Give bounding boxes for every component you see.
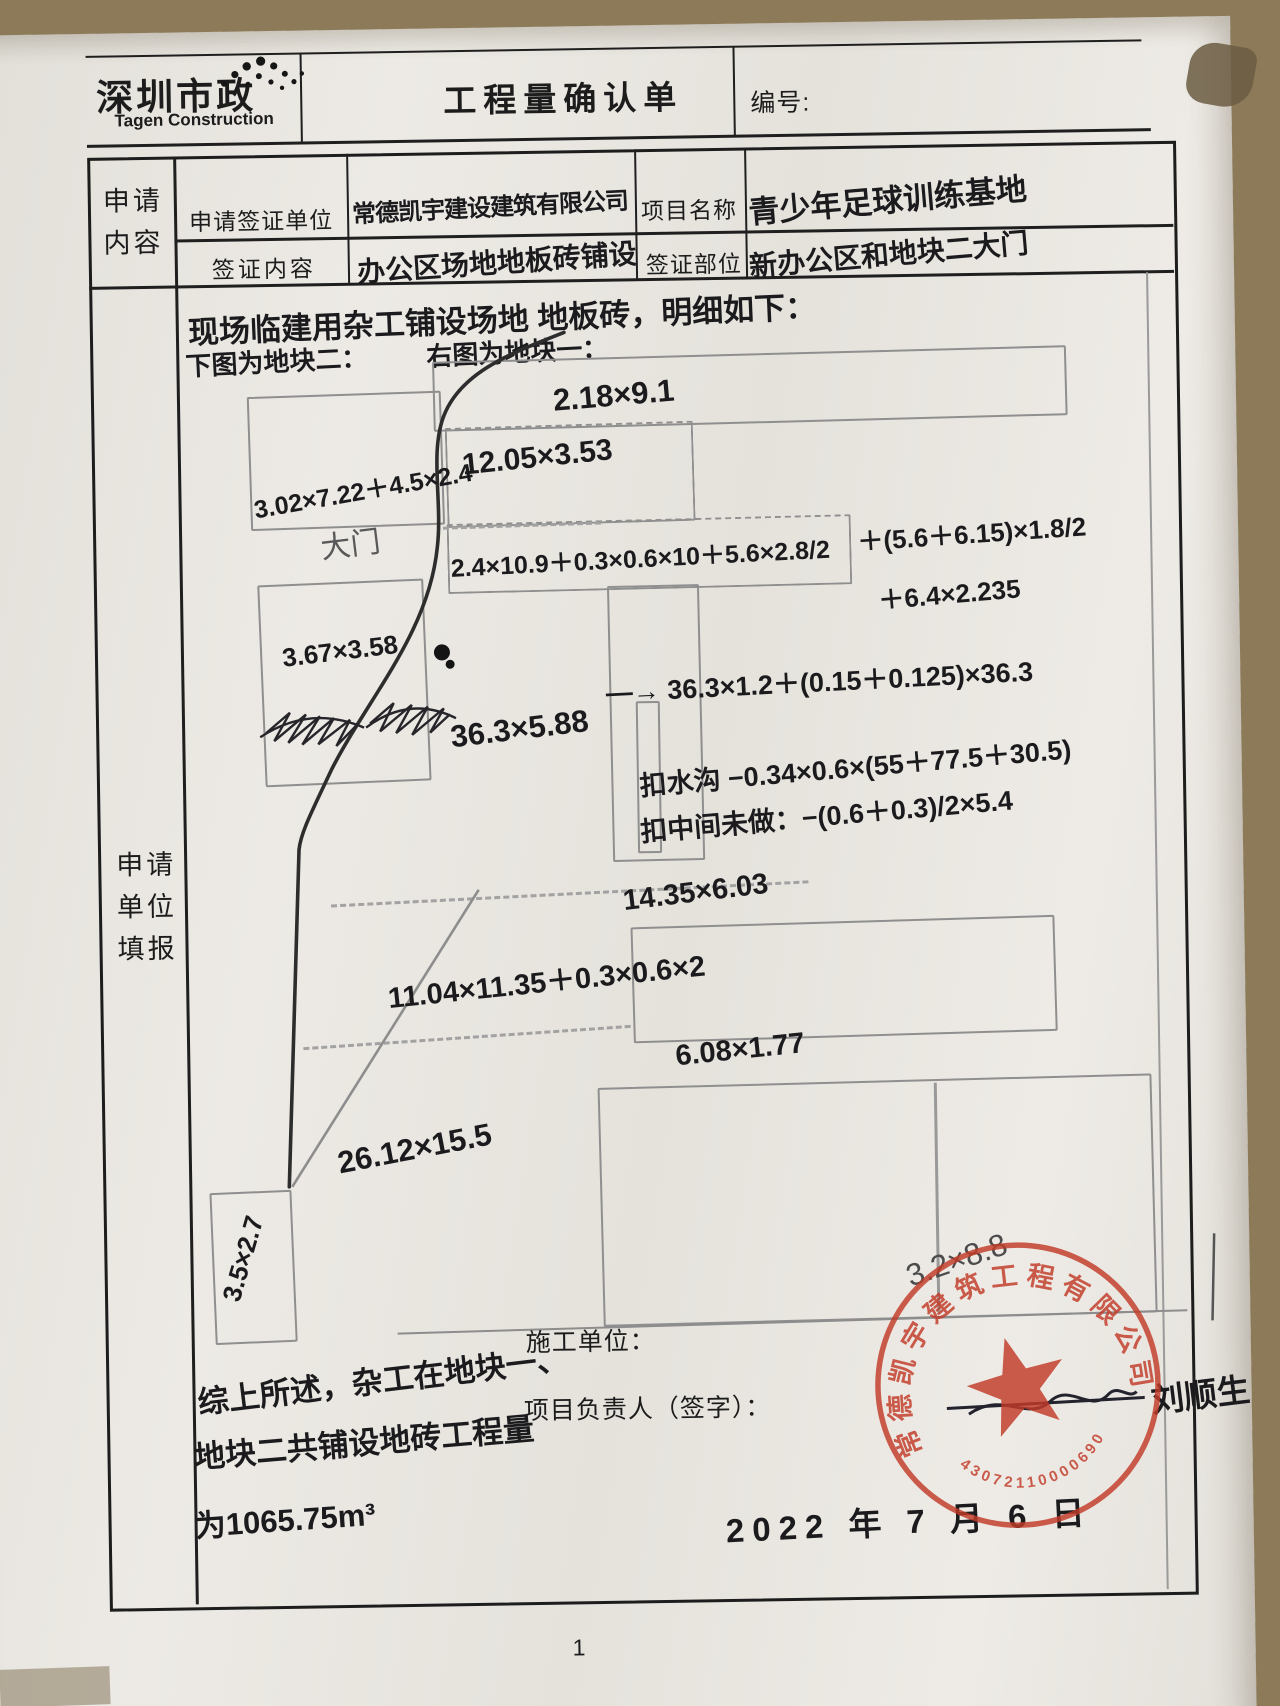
right-margin-mark <box>1211 1233 1215 1320</box>
photo-background: 深圳市政 Tagen Construction 工程量确认单 编号: <box>0 0 1280 1706</box>
sketch-gate-label: 大门 <box>318 516 383 567</box>
paper-sheet: 深圳市政 Tagen Construction 工程量确认单 编号: <box>0 16 1258 1706</box>
ink-blot-small <box>446 660 455 669</box>
page-number: 1 <box>572 1634 585 1661</box>
form-content: 深圳市政 Tagen Construction 工程量确认单 编号: <box>0 0 1280 1706</box>
bottom-edge-shadow <box>0 1666 111 1706</box>
ink-blot <box>434 644 450 660</box>
project-manager-label: 项目负责人（签字）： <box>524 1387 772 1427</box>
crossed-out-scribble-2 <box>366 702 456 735</box>
seal-serial-number: 43072110000690 <box>954 1416 1118 1510</box>
seal-star-icon <box>957 1324 1078 1442</box>
svg-text:43072110000690: 43072110000690 <box>954 1416 1118 1510</box>
